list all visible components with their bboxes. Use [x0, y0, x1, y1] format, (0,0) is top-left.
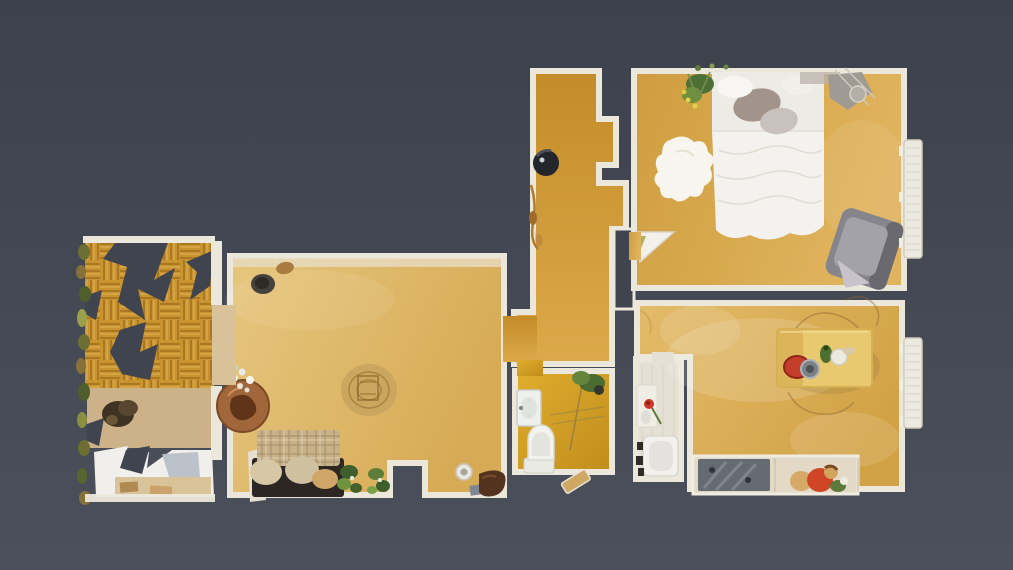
living-hall-door-opening — [503, 316, 537, 362]
utility-door-opening — [652, 352, 674, 364]
plate — [456, 464, 472, 480]
bedroom-door-opening — [629, 232, 641, 260]
sofa — [248, 430, 344, 502]
room-living[interactable] — [217, 256, 506, 502]
room-bedroom[interactable] — [634, 64, 922, 300]
balcony-door-opening — [212, 305, 236, 385]
floorplan-viewport — [0, 0, 1013, 570]
utility-counter — [637, 385, 661, 427]
grey-bowl — [801, 360, 819, 378]
robot-vacuum — [533, 150, 559, 176]
mirror — [850, 86, 866, 102]
floorplan-canvas[interactable] — [0, 0, 1013, 570]
jute-rug — [341, 364, 397, 416]
sink — [517, 390, 541, 426]
sofa-cushion — [250, 459, 282, 485]
dark-planter — [251, 274, 275, 294]
pillow-white — [717, 76, 753, 98]
green-bottle — [820, 345, 832, 363]
round-side-table — [217, 380, 269, 432]
windowsill-band — [233, 258, 501, 267]
double-bed — [712, 72, 824, 240]
scan-haze — [225, 270, 395, 330]
sofa-cushion — [312, 469, 338, 489]
bathroom-door-opening — [517, 360, 543, 376]
glass — [641, 410, 651, 424]
washing-machine — [643, 436, 678, 476]
